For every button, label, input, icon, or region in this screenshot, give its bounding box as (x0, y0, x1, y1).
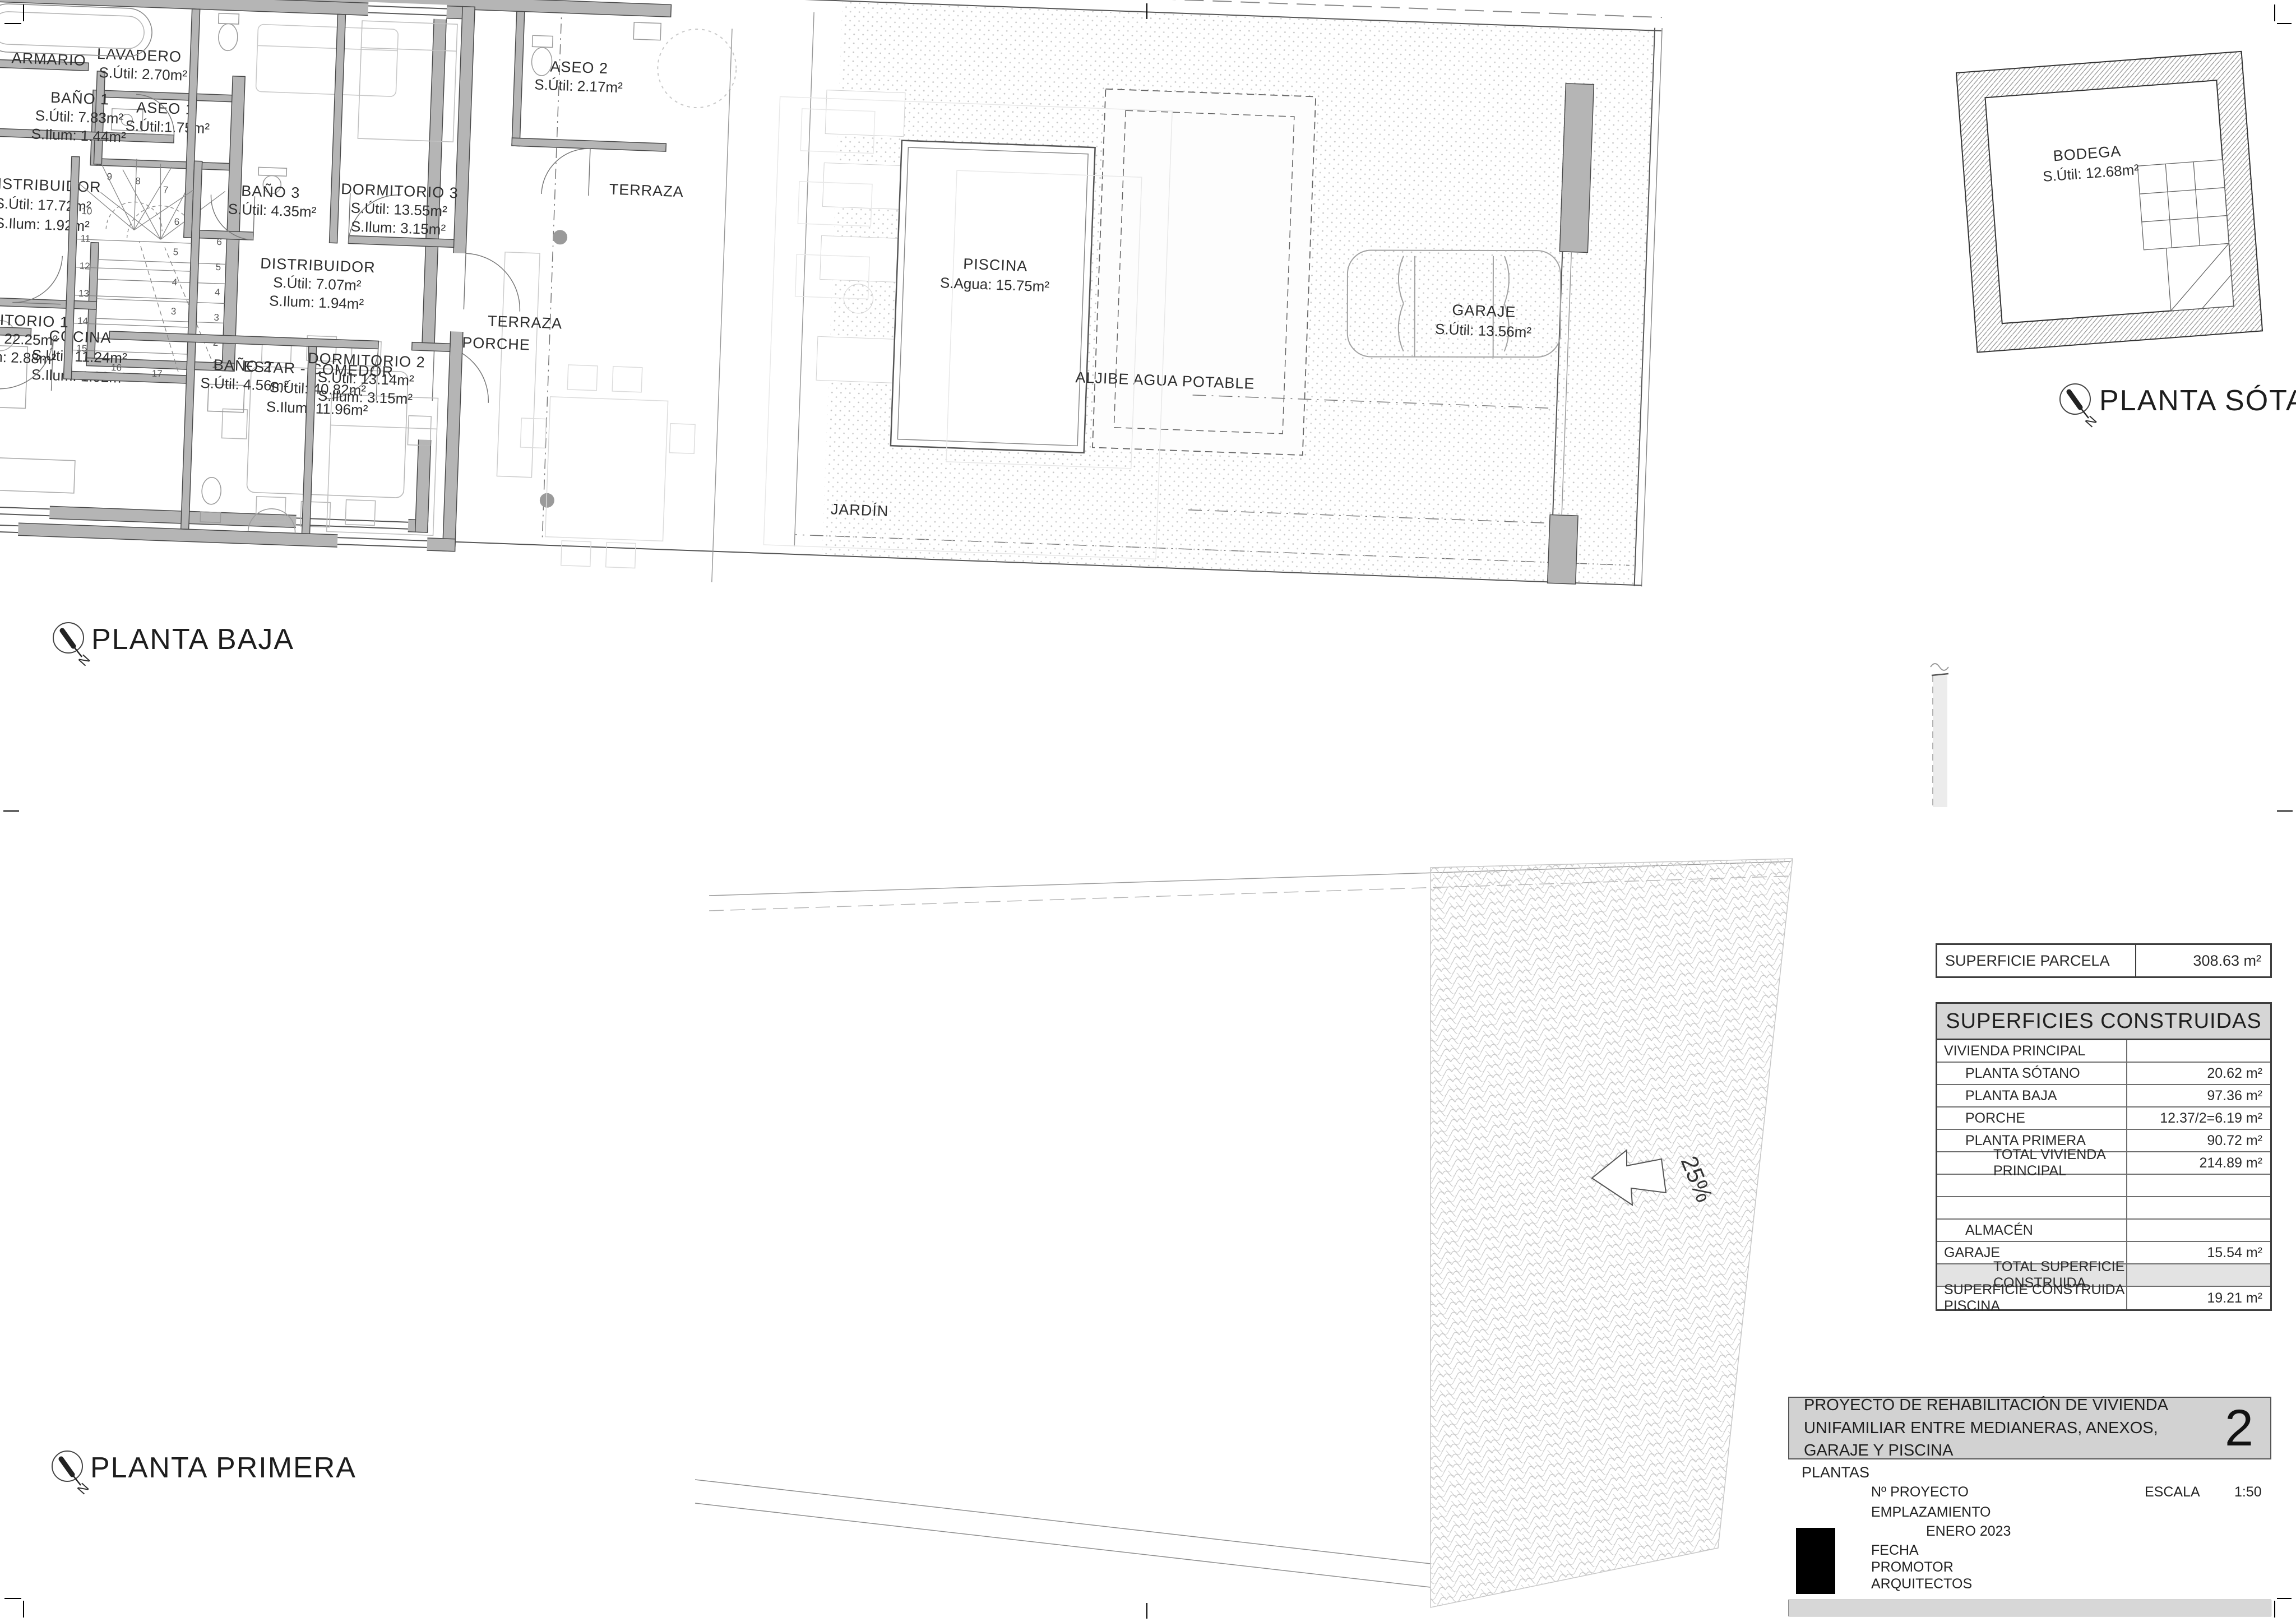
construidas-title: SUPERFICIES CONSTRUIDAS (1937, 1004, 2270, 1040)
row-value (2127, 1197, 2270, 1218)
room-area-dorm3: S.Útil: 13.55m² (350, 200, 447, 220)
row-label: SUPERFICIE CONSTRUIDA PISCINA (1937, 1287, 2127, 1309)
row-label: PLANTA BAJA (1937, 1085, 2127, 1106)
drawing-sheet: 6 5 4 3 2 1 (0, 0, 2296, 1622)
parcela-table: SUPERFICIE PARCELA 308.63 m² (1936, 943, 2272, 978)
row-label: VIVIENDA PRINCIPAL (1937, 1040, 2127, 1062)
stair-num: 4 (172, 277, 177, 288)
stair-num: 8 (135, 175, 141, 186)
table-row: PLANTA SÓTANO20.62 m² (1937, 1063, 2270, 1085)
stair-num: 13 (78, 288, 90, 299)
room-label-terraza-pb: TERRAZA (609, 180, 684, 200)
room-label-terraza-pp: TERRAZA (488, 313, 563, 332)
stair-num: 5 (215, 262, 221, 272)
room-label-garaje: GARAJE (1452, 302, 1516, 321)
room-label-jardin: JARDÍN (830, 500, 889, 520)
plan-title-baja: PLANTA BAJA (91, 623, 294, 656)
room-area-distribuidor-pp: S.Útil: 7.07m² (273, 274, 362, 294)
table-row-empty (1937, 1197, 2270, 1220)
stair-num: 4 (215, 287, 220, 298)
row-value (2127, 1040, 2270, 1062)
plan-title-sotano: PLANTA SÓTANO (2099, 384, 2296, 417)
table-row: PLANTA BAJA97.36 m² (1937, 1085, 2270, 1107)
scale-value: 1:50 (2234, 1484, 2262, 1500)
row-value: 214.89 m² (2127, 1152, 2270, 1174)
titleblock-bar: PROYECTO DE REHABILITACIÓN DE VIVIENDA U… (1788, 1397, 2271, 1459)
stair-num: 16 (111, 362, 122, 373)
room-ilum-distribuidor-pp: S.Ilum: 1.94m² (269, 292, 364, 312)
sheet-number: 2 (2225, 1399, 2270, 1458)
planta-sotano-plan: BODEGA S.Útil: 12.68m² (1956, 52, 2262, 353)
room-ilum-dorm2: S.Ilum: 3.15m² (317, 387, 413, 407)
stair-num: 11 (80, 233, 90, 244)
stair-num: 3 (171, 306, 177, 317)
stair-num: 17 (151, 368, 163, 379)
planta-baja-plan: 6 5 4 3 2 1 (0, 0, 1663, 586)
titleblock-bottom-strip (1788, 1600, 2271, 1616)
sofa (256, 24, 398, 96)
firm-logo (1796, 1528, 1835, 1594)
room-label-distribuidor-pp: DISTRIBUIDOR (260, 255, 376, 276)
row-label (1937, 1197, 2127, 1218)
project-title: PROYECTO DE REHABILITACIÓN DE VIVIENDA U… (1789, 1394, 2225, 1462)
table-row: SUPERFICIE CONSTRUIDA PISCINA19.21 m² (1937, 1287, 2270, 1309)
plan-title-primera: PLANTA PRIMERA (90, 1452, 357, 1484)
field-n-proyecto: Nº PROYECTO (1871, 1484, 1969, 1500)
room-label-piscina: PISCINA (963, 256, 1028, 275)
pb-title-group: N PLANTA BAJA (53, 623, 294, 669)
room-label-bano2: BAÑO 2 (213, 356, 272, 376)
row-value (2127, 1175, 2270, 1196)
table-row-empty (1937, 1175, 2270, 1197)
row-value: 15.54 m² (2127, 1242, 2270, 1263)
ps-title-group: N PLANTA SÓTANO (2060, 384, 2296, 430)
table-row: ALMACÉN (1937, 1220, 2270, 1242)
pp-path-line (695, 1480, 1431, 1564)
room-label-aseo2: ASEO 2 (550, 58, 609, 77)
scale-label: ESCALA (2145, 1484, 2200, 1500)
row-label: PORCHE (1937, 1107, 2127, 1129)
pp-title-group: N PLANTA PRIMERA (52, 1451, 357, 1498)
ramp: 25% (1431, 859, 1793, 1607)
room-label-distribuidor: DISTRIBUIDOR (0, 175, 101, 196)
room-area-dorm2: S.Útil: 13.14m² (317, 369, 414, 389)
compass-n-label: N (76, 652, 94, 669)
row-value: 90.72 m² (2127, 1130, 2270, 1151)
row-value (2127, 1264, 2270, 1286)
room-ilum-bano1: S.Ilum: 1.44m² (31, 126, 126, 146)
field-fecha-value: ENERO 2023 (1926, 1523, 2011, 1540)
sheet-content-label: PLANTAS (1802, 1464, 1869, 1481)
room-area-bano2: S.Útil: 4.56m² (200, 374, 289, 395)
aljibe-tank (1093, 89, 1316, 455)
stair-num: 3 (214, 312, 219, 323)
row-value (2127, 1220, 2270, 1241)
stair-num: 9 (107, 172, 112, 182)
room-ilum-dorm3: S.Ilum: 3.15m² (351, 218, 446, 238)
compass-n-label: N (2082, 413, 2100, 430)
parcela-value: 308.63 m² (2136, 945, 2270, 976)
room-area-bano3: S.Útil: 4.35m² (228, 201, 317, 221)
stair-num: 7 (163, 184, 168, 195)
wall-break-strip (1931, 664, 1948, 807)
stair-num: 5 (173, 247, 178, 257)
room-ilum-dorm1: S.Ilum: 2.88m² (0, 347, 57, 367)
field-promotor: PROMOTOR (1871, 1559, 1954, 1575)
field-fecha: FECHA (1871, 1542, 1919, 1559)
row-label: PLANTA SÓTANO (1937, 1063, 2127, 1084)
row-value: 20.62 m² (2127, 1063, 2270, 1084)
room-label-bano1: BAÑO 1 (50, 89, 110, 108)
room-area-lavadero: S.Útil: 2.70m² (99, 64, 188, 84)
row-label: ALMACÉN (1937, 1220, 2127, 1241)
room-area-garaje: S.Útil: 13.56m² (1435, 321, 1532, 341)
room-label-dorm3: DORMITORIO 3 (341, 180, 459, 202)
stair-num: 6 (174, 216, 179, 227)
plans-canvas: 6 5 4 3 2 1 (0, 0, 2296, 1622)
stair-num: 10 (81, 206, 92, 217)
pp-path-line2 (695, 1503, 1431, 1587)
row-value: 97.36 m² (2127, 1085, 2270, 1106)
table-row: TOTAL VIVIENDA PRINCIPAL214.89 m² (1937, 1152, 2270, 1175)
row-value: 19.21 m² (2127, 1287, 2270, 1309)
table-row: VIVIENDA PRINCIPAL (1937, 1040, 2270, 1063)
row-value: 12.37/2=6.19 m² (2127, 1107, 2270, 1129)
compass-n-label: N (75, 1480, 92, 1498)
field-arquitectos: ARQUITECTOS (1871, 1576, 1972, 1592)
stair-num: 14 (77, 316, 89, 327)
parcela-label: SUPERFICIE PARCELA (1937, 945, 2136, 976)
row-label (1937, 1175, 2127, 1196)
room-area-aseo2: S.Útil: 2.17m² (534, 76, 623, 96)
table-row: PORCHE12.37/2=6.19 m² (1937, 1107, 2270, 1130)
room-label-bano3: BAÑO 3 (241, 182, 300, 201)
porch-table (497, 252, 540, 478)
row-label: TOTAL VIVIENDA PRINCIPAL (1937, 1152, 2127, 1174)
field-emplazamiento: EMPLAZAMIENTO (1871, 1504, 1991, 1521)
construidas-table: SUPERFICIES CONSTRUIDAS VIVIENDA PRINCIP… (1936, 1002, 2272, 1311)
room-label-dorm1: DORMITORIO 1 (0, 310, 69, 331)
pool (891, 141, 1095, 453)
stair-num: 12 (79, 261, 90, 272)
room-area-bano1: S.Útil: 7.83m² (35, 107, 124, 127)
room-area-dorm1: S.Útil: 22.25m² (0, 328, 58, 349)
stair-num: 15 (76, 343, 87, 354)
room-label-porche: PORCHE (462, 334, 531, 353)
